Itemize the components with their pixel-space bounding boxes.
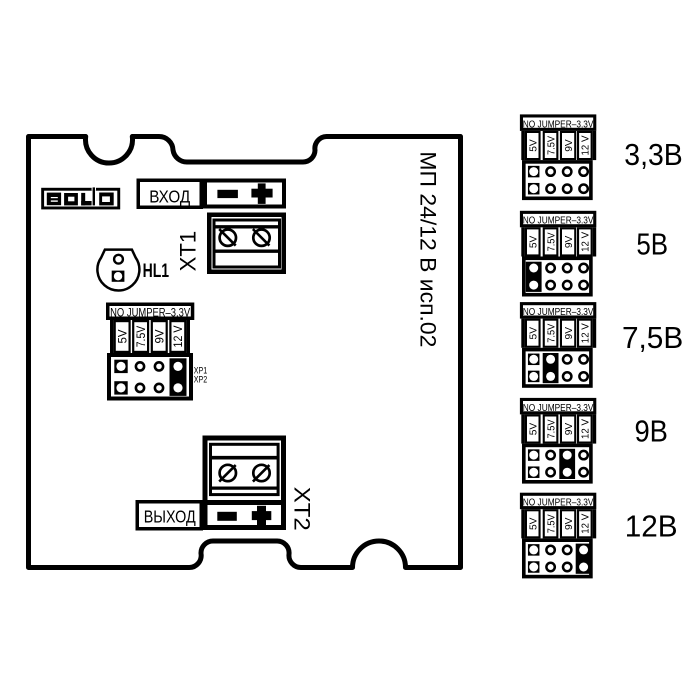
svg-text:NO JUMPER–3.3V: NO JUMPER–3.3V — [110, 305, 190, 319]
svg-text:7.5V: 7.5V — [136, 325, 148, 347]
svg-text:7.5V: 7.5V — [545, 136, 557, 155]
svg-text:9В: 9В — [634, 413, 668, 448]
svg-text:12 V: 12 V — [173, 325, 185, 347]
svg-text:9V: 9V — [563, 518, 575, 531]
svg-text:12 V: 12 V — [580, 323, 592, 343]
svg-text:5V: 5V — [117, 329, 129, 343]
svg-text:7.5V: 7.5V — [545, 514, 557, 533]
svg-text:12 V: 12 V — [580, 136, 592, 156]
svg-text:7.5V: 7.5V — [545, 420, 557, 439]
svg-text:9V: 9V — [155, 329, 167, 343]
svg-text:5V: 5V — [528, 139, 540, 152]
svg-text:5V: 5V — [528, 518, 540, 531]
svg-text:3,3В: 3,3В — [624, 137, 683, 172]
svg-text:7,5В: 7,5В — [622, 320, 683, 355]
svg-text:12 V: 12 V — [580, 514, 592, 534]
svg-text:NO JUMPER–3.3V: NO JUMPER–3.3V — [523, 403, 594, 414]
svg-text:7.5V: 7.5V — [545, 324, 557, 343]
svg-text:NO JUMPER–3.3V: NO JUMPER–3.3V — [523, 216, 594, 227]
svg-text:ВХОД: ВХОД — [149, 186, 190, 206]
svg-text:12 V: 12 V — [580, 232, 592, 252]
svg-text:9V: 9V — [563, 423, 575, 436]
svg-text:МП 24/12 В исп.02: МП 24/12 В исп.02 — [416, 151, 441, 347]
svg-text:5В: 5В — [636, 226, 668, 261]
svg-text:5V: 5V — [528, 423, 540, 436]
svg-text:NO JUMPER–3.3V: NO JUMPER–3.3V — [523, 307, 594, 318]
svg-text:NO JUMPER–3.3V: NO JUMPER–3.3V — [523, 498, 594, 509]
svg-text:9V: 9V — [563, 139, 575, 152]
svg-text:XT1: XT1 — [176, 231, 201, 272]
svg-text:5V: 5V — [528, 327, 540, 340]
svg-text:12 V: 12 V — [580, 419, 592, 439]
svg-text:HL1: HL1 — [143, 261, 170, 282]
svg-text:9V: 9V — [563, 327, 575, 340]
svg-text:ВЫХОД: ВЫХОД — [144, 507, 196, 527]
svg-text:7.5V: 7.5V — [545, 232, 557, 251]
svg-text:12В: 12В — [625, 509, 678, 544]
svg-text:5V: 5V — [528, 236, 540, 249]
svg-text:NO JUMPER–3.3V: NO JUMPER–3.3V — [523, 119, 594, 130]
svg-text:XP2: XP2 — [194, 374, 208, 384]
svg-text:9V: 9V — [563, 236, 575, 249]
svg-text:XT2: XT2 — [290, 487, 315, 531]
